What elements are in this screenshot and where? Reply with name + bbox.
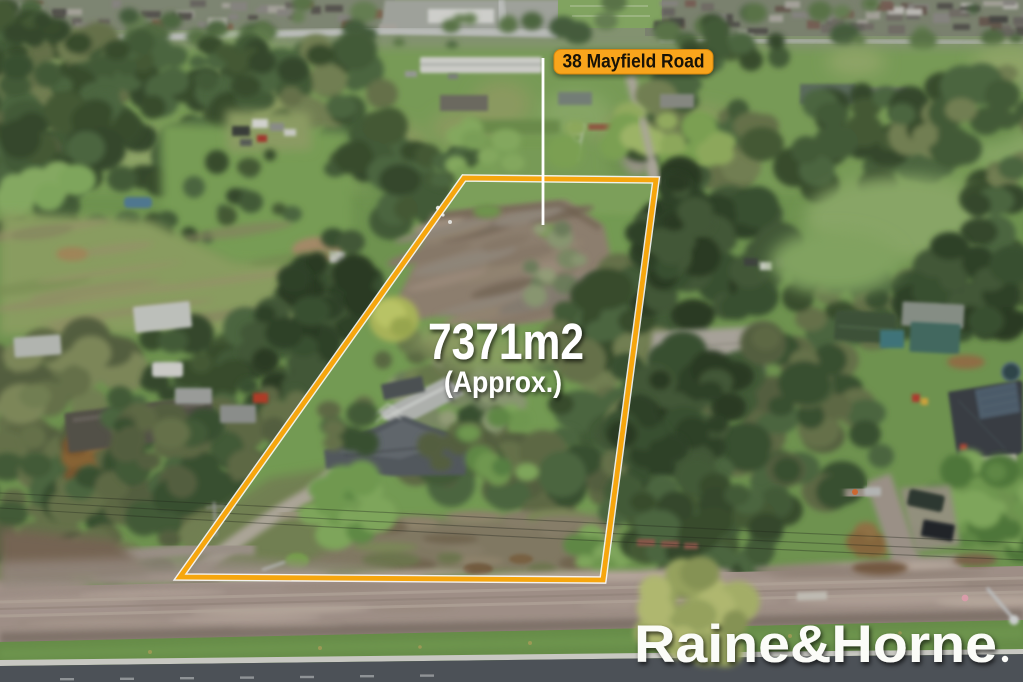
svg-text:Raine&Horne: Raine&Horne xyxy=(634,615,997,674)
svg-text:(Approx.): (Approx.) xyxy=(444,366,562,399)
svg-text:7371m2: 7371m2 xyxy=(428,313,584,370)
svg-text:38 Mayfield Road: 38 Mayfield Road xyxy=(563,52,705,73)
